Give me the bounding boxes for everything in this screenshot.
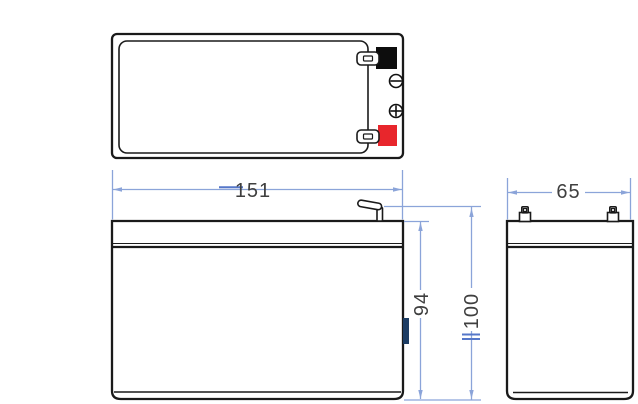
terminal-base — [520, 213, 531, 222]
front-view — [112, 200, 409, 399]
front-view-terminal — [357, 200, 382, 221]
terminal-base — [608, 213, 619, 222]
top-view — [112, 34, 403, 158]
side-view — [507, 207, 633, 399]
side-label-tab — [403, 318, 409, 344]
drawing-svg: 151 94 100 65 — [0, 0, 638, 404]
plus-circle-icon — [390, 105, 403, 118]
arrowhead-bottom — [418, 390, 422, 399]
dimension-label-overall-length: 151 — [235, 180, 271, 202]
arrowhead-top — [469, 208, 473, 217]
dimension-overall-length: 151 — [113, 170, 403, 220]
terminal-blade — [357, 200, 382, 211]
arrowhead-right — [393, 187, 402, 191]
arrowhead-right — [621, 190, 630, 194]
arrowhead-left — [508, 190, 517, 194]
arrowhead-top — [418, 222, 422, 231]
dimension-label-total-height: 100 — [461, 293, 483, 329]
arrowhead-left — [113, 187, 122, 191]
terminal-post-slot — [611, 209, 614, 212]
battery-dimension-drawing: 151 94 100 65 — [0, 0, 638, 404]
positive-terminal-block — [378, 125, 397, 146]
dimension-label-width: 65 — [556, 181, 580, 203]
dimension-container-height: 94 — [404, 222, 433, 400]
positive-faston-slot — [364, 134, 373, 139]
side-terminal-left — [520, 207, 531, 222]
arrowhead-bottom — [469, 390, 473, 399]
terminal-post-slot — [523, 209, 526, 212]
negative-faston-slot — [364, 56, 373, 61]
dimension-label-container-height: 94 — [411, 292, 433, 316]
side-terminal-right — [608, 207, 619, 222]
